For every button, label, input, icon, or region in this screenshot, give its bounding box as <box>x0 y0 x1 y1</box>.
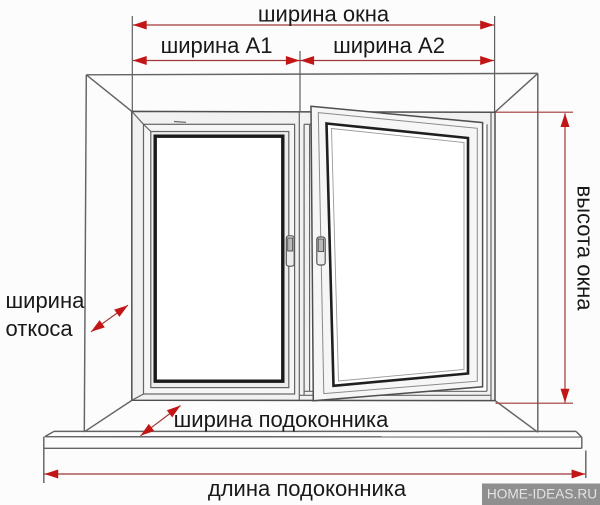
svg-text:ширина А1: ширина А1 <box>161 33 273 58</box>
svg-text:откоса: откоса <box>6 316 74 341</box>
svg-text:ширина подоконника: ширина подоконника <box>174 407 390 432</box>
svg-text:ширина окна: ширина окна <box>258 1 390 26</box>
svg-text:ширина А2: ширина А2 <box>333 33 445 58</box>
svg-text:HOME-IDEAS.RU: HOME-IDEAS.RU <box>487 486 597 501</box>
svg-text:высота окна: высота окна <box>573 186 598 312</box>
svg-text:длина подоконника: длина подоконника <box>208 476 407 501</box>
svg-text:ширина: ширина <box>6 288 86 313</box>
